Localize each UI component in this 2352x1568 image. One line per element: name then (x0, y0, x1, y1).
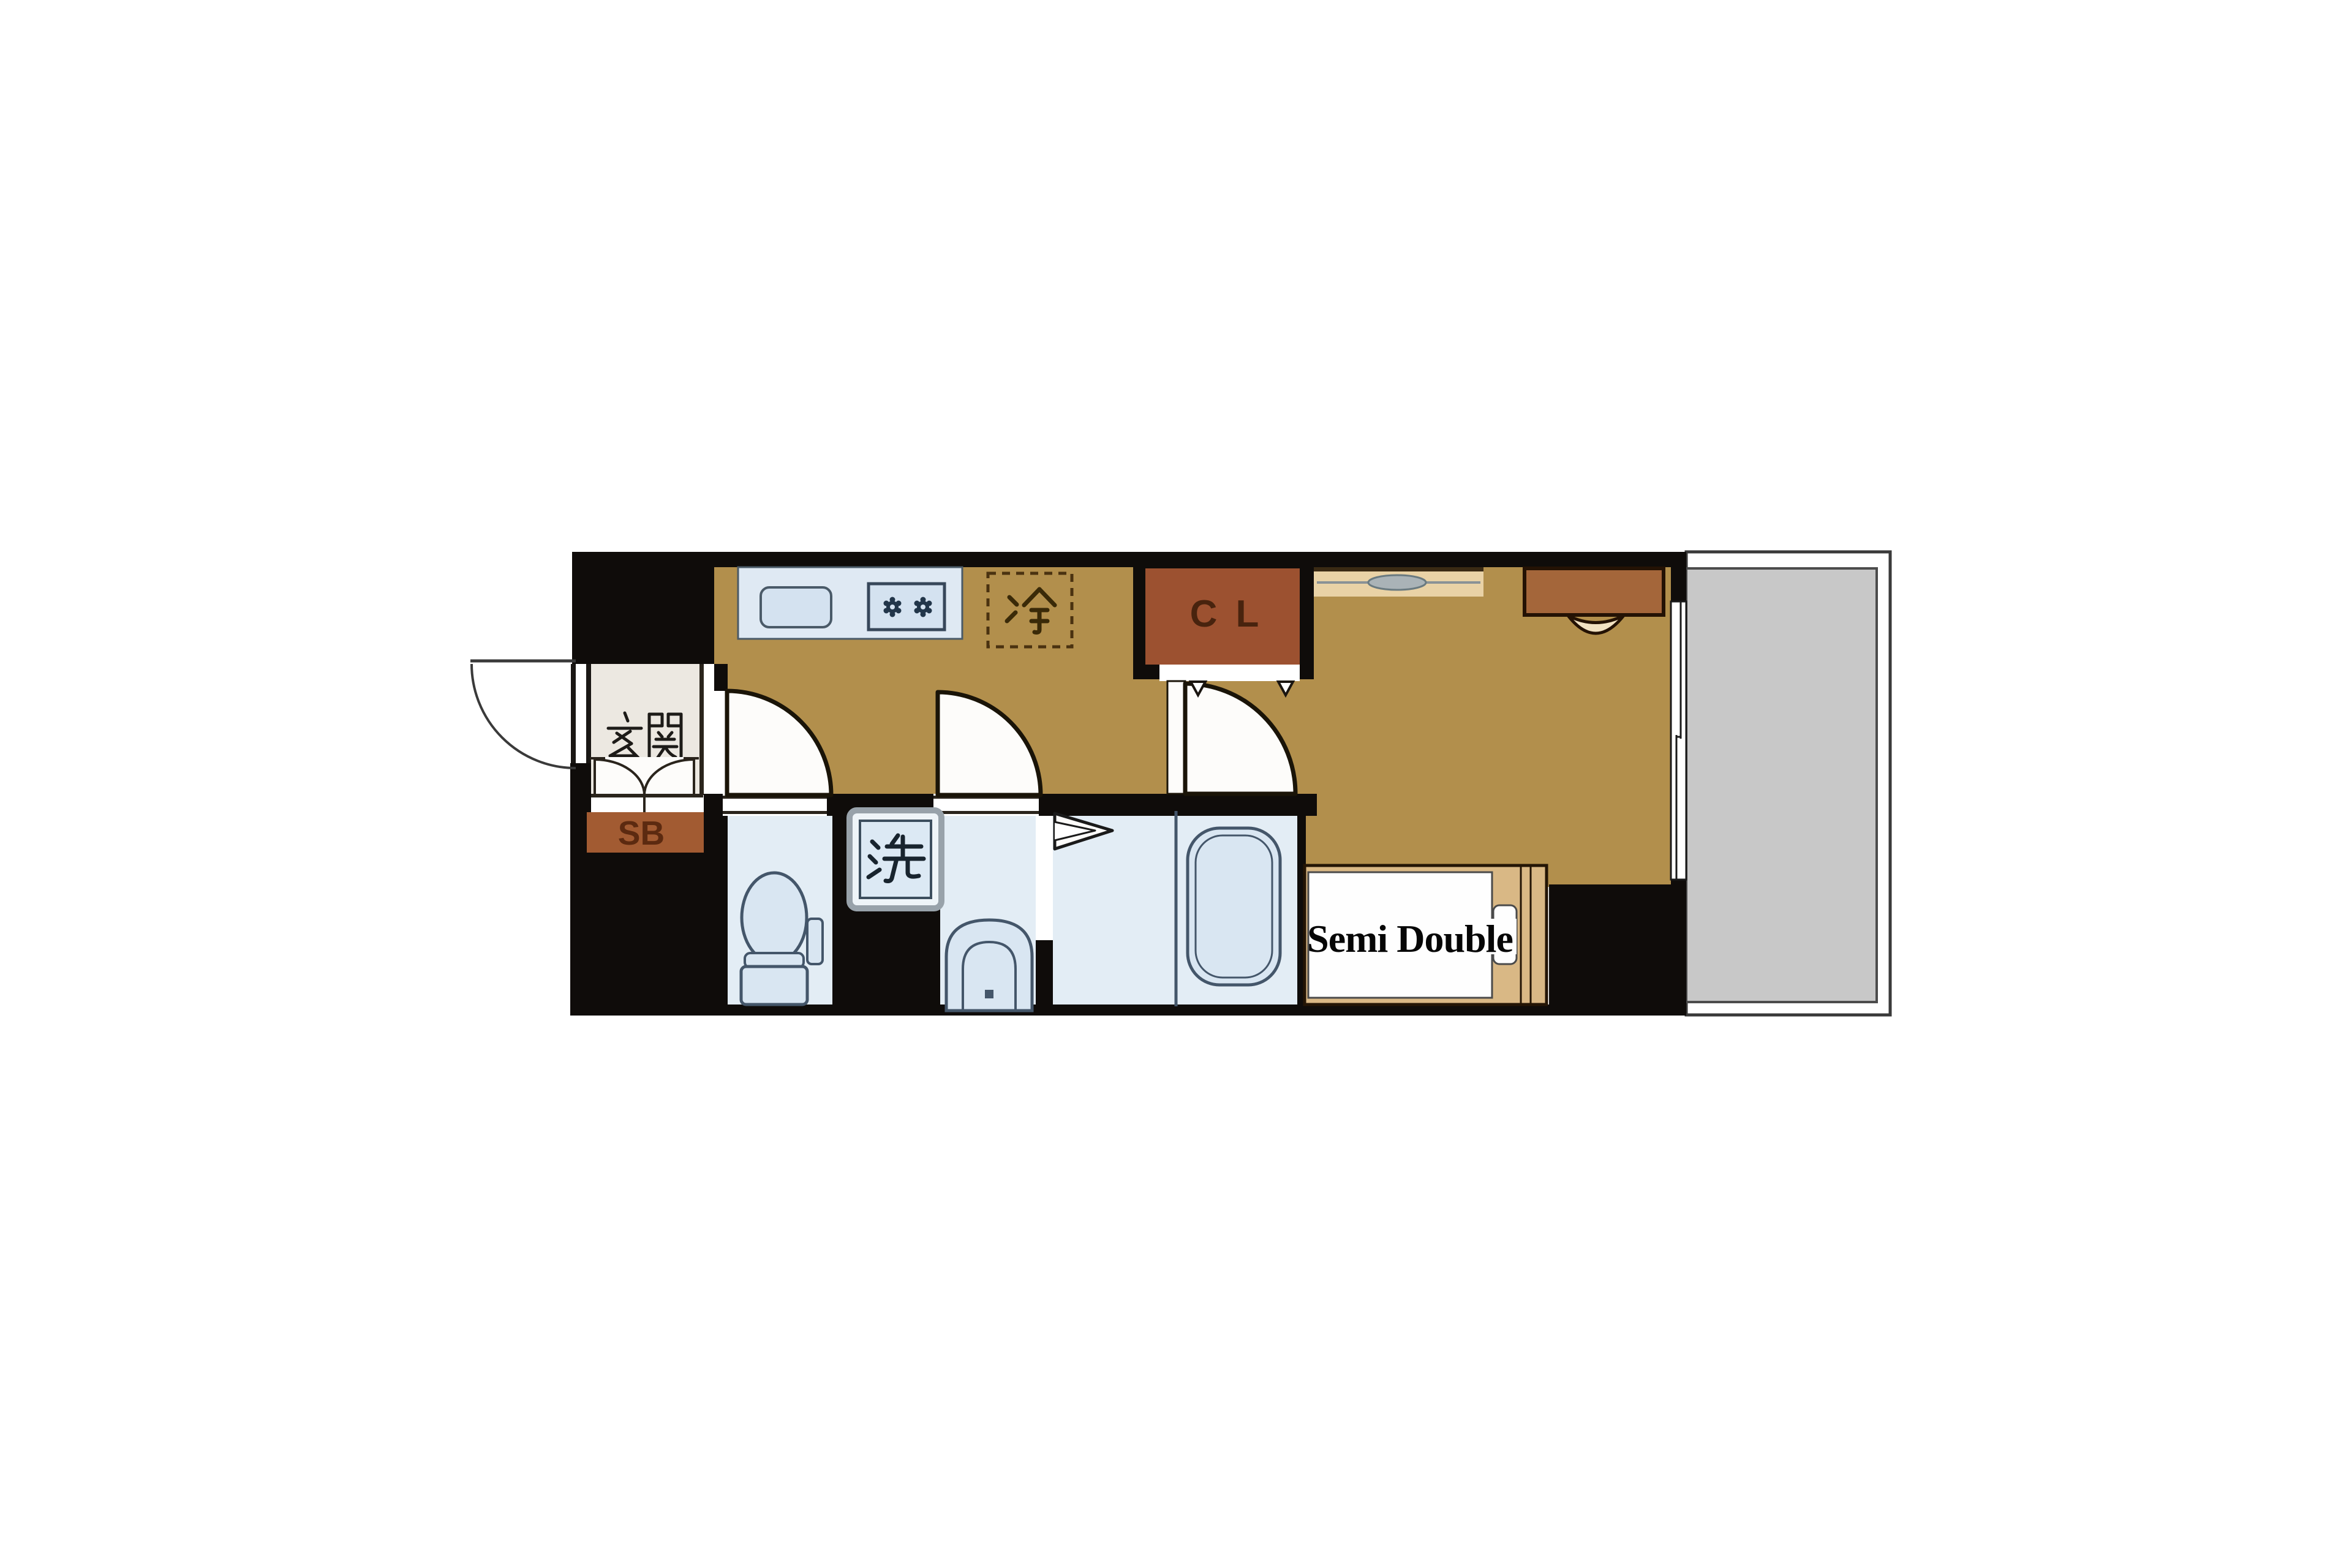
svg-text:SB: SB (618, 814, 665, 852)
svg-text:CL: CL (1190, 593, 1278, 635)
svg-text:Semi Double: Semi Double (1307, 917, 1513, 960)
